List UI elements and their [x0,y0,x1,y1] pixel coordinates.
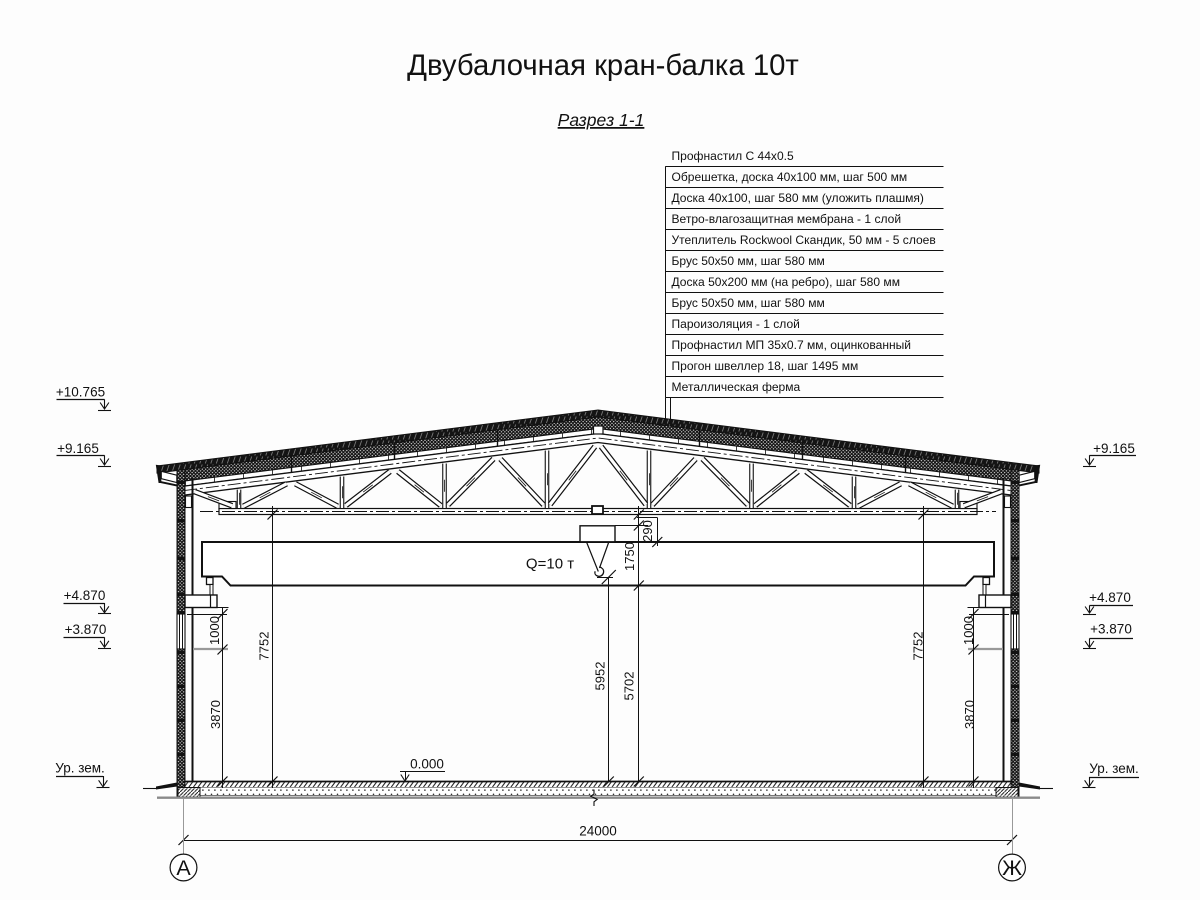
svg-text:Утеплитель Rockwool Скандик, 5: Утеплитель Rockwool Скандик, 50 мм - 5 с… [672,233,936,247]
svg-text:Профнастил С 44х0.5: Профнастил С 44х0.5 [672,149,794,163]
svg-text:1750: 1750 [622,542,637,571]
svg-text:Ж: Ж [1002,856,1022,880]
svg-text:5952: 5952 [593,662,608,691]
svg-text:Ветро-влагозащитная мембрана -: Ветро-влагозащитная мембрана - 1 слой [672,212,902,226]
svg-text:Доска 50х200 мм (на ребро), ша: Доска 50х200 мм (на ребро), шаг 580 мм [672,275,900,289]
svg-text:+4.870: +4.870 [64,588,106,603]
svg-text:Разрез 1-1: Разрез 1-1 [558,110,645,130]
svg-text:3870: 3870 [208,700,223,729]
svg-text:+3.870: +3.870 [1090,622,1132,637]
svg-text:+4.870: +4.870 [1089,590,1131,605]
svg-text:5702: 5702 [622,672,637,701]
svg-text:Обрешетка, доска 40х100 мм, ша: Обрешетка, доска 40х100 мм, шаг 500 мм [672,170,908,184]
svg-text:Q=10 т: Q=10 т [526,556,574,573]
svg-text:+3.870: +3.870 [65,622,107,637]
svg-text:3870: 3870 [962,700,977,729]
svg-text:Ур. зем.: Ур. зем. [1089,761,1139,776]
svg-text:Профнастил МП 35х0.7 мм, оцинк: Профнастил МП 35х0.7 мм, оцинкованный [672,338,912,352]
svg-text:290: 290 [640,520,655,542]
svg-text:1000: 1000 [961,616,976,645]
svg-text:7752: 7752 [911,632,926,661]
svg-text:А: А [176,856,191,880]
svg-text:+9.165: +9.165 [57,441,99,456]
svg-text:+9.165: +9.165 [1093,441,1135,456]
svg-text:+10.765: +10.765 [56,385,105,400]
svg-text:Пароизоляция - 1 слой: Пароизоляция - 1 слой [672,317,800,331]
svg-text:Прогон швеллер 18, шаг 1495 мм: Прогон швеллер 18, шаг 1495 мм [672,359,859,373]
svg-text:Металлическая ферма: Металлическая ферма [672,380,801,394]
svg-text:24000: 24000 [579,824,617,839]
svg-text:Брус 50х50 мм, шаг 580 мм: Брус 50х50 мм, шаг 580 мм [672,296,825,310]
svg-text:Брус 50х50 мм, шаг 580 мм: Брус 50х50 мм, шаг 580 мм [672,254,825,268]
svg-text:1000: 1000 [207,616,222,645]
svg-text:Ур. зем.: Ур. зем. [55,761,105,776]
svg-text:0.000: 0.000 [410,757,444,772]
svg-text:Доска 40х100, шаг 580 мм (улож: Доска 40х100, шаг 580 мм (уложить плашмя… [672,191,924,205]
svg-text:7752: 7752 [257,632,272,661]
svg-text:Двубалочная кран-балка 10т: Двубалочная кран-балка 10т [407,49,799,82]
